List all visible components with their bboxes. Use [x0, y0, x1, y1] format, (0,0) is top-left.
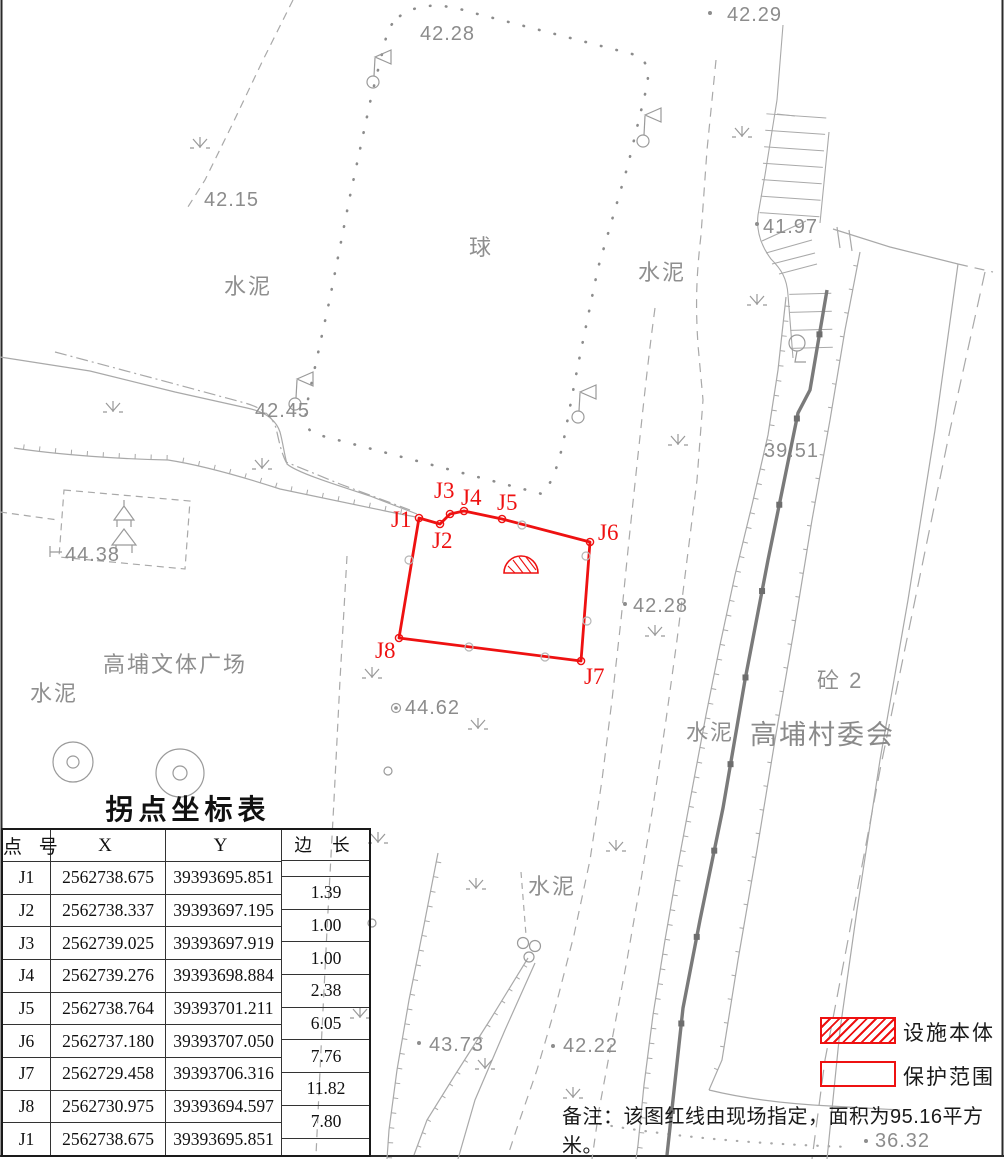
spot-height: 42.45	[255, 400, 310, 422]
table-row: J32562739.02539393697.919	[3, 927, 282, 960]
point-label-j6: J6	[598, 520, 618, 545]
point-label-j5: J5	[497, 490, 517, 515]
tick-marks	[760, 114, 827, 217]
tree-icon	[53, 742, 93, 782]
court-label: 球	[469, 235, 493, 260]
red-boundary-polygon	[399, 511, 590, 661]
steps-rungs-upper	[789, 106, 797, 222]
map-note: 备注：该图红线由现场指定，面积为95.16平方米。	[562, 1100, 1004, 1158]
cement-label: 水泥	[528, 874, 576, 899]
road-edge	[0, 357, 417, 514]
cement-label: 水泥	[686, 720, 734, 745]
table-row: J22562738.33739393697.195	[3, 894, 282, 927]
grass-icon	[668, 434, 688, 445]
table-row: J52562738.76439393701.211	[3, 992, 282, 1025]
concrete-pad-top-dash	[958, 264, 993, 272]
grass-icon	[466, 878, 486, 889]
side-length: 11.82	[282, 1073, 370, 1106]
protection-boundary: J1 J2 J3 J4 J5 J6 J7 J8	[375, 478, 618, 689]
facility-dome	[504, 556, 538, 573]
legend-facility-swatch	[820, 1017, 896, 1044]
flag-icon	[637, 108, 661, 147]
tick-marks	[417, 965, 527, 1147]
legend-facility-label: 设施本体	[903, 1017, 995, 1047]
point-label-j1: J1	[391, 507, 411, 532]
side-length: 7.80	[282, 1106, 370, 1139]
point-label-j7: J7	[584, 664, 604, 689]
col-header-y: Y	[166, 830, 282, 862]
grass-icon	[645, 625, 665, 636]
side-length-column: 边 长 1.39 1.00 1.00 2.38 6.05 7.76 11.82 …	[282, 829, 370, 1156]
survey-circle	[384, 767, 392, 775]
grass-icon	[362, 667, 382, 678]
legend-protection-label: 保护范围	[903, 1061, 995, 1091]
spot-height: 42.29	[727, 4, 782, 26]
spot-height: 42.15	[204, 189, 259, 211]
col-header-point: 点 号	[3, 830, 51, 862]
grass-icon	[747, 294, 767, 305]
col-header-x: X	[51, 830, 166, 862]
cement-label: 水泥	[30, 681, 78, 706]
dashed-lamp-feed	[521, 872, 526, 935]
table-row: J82562730.97539393694.597	[3, 1090, 282, 1123]
grass-icon	[103, 401, 123, 412]
grass-icon	[606, 840, 626, 851]
flag-icon	[572, 385, 596, 423]
spot-height: 42.22	[563, 1035, 618, 1057]
dashed-track-left	[508, 308, 655, 1155]
col-header-length: 边 长	[282, 829, 370, 861]
side-length: 1.00	[282, 942, 370, 975]
steps-right-edge	[820, 132, 829, 223]
legend-protection-swatch	[820, 1061, 896, 1087]
point-label-j2: J2	[432, 528, 452, 553]
table-row: J42562739.27639393698.884	[3, 959, 282, 992]
spot-height: 41.97	[763, 216, 818, 238]
fence-line	[14, 448, 416, 517]
grass-icon	[368, 832, 388, 843]
spot-height: 39.51	[764, 440, 819, 462]
lamp-cluster-icon	[518, 938, 541, 963]
spot-height: 42.28	[420, 23, 475, 45]
coordinate-table: 点 号 X Y J12562738.67539393695.851 J22562…	[2, 829, 282, 1156]
side-length: 6.05	[282, 1008, 370, 1041]
table-row: J62562737.18039393707.050	[3, 1025, 282, 1058]
point-label-j4: J4	[461, 485, 482, 510]
path-to-lamp	[458, 963, 535, 1159]
side-length: 1.39	[282, 877, 370, 910]
table-title: 拐点坐标表	[78, 788, 298, 828]
side-length: 7.76	[282, 1040, 370, 1073]
building-leader	[0, 512, 58, 520]
table-row: J12562738.67539393695.851	[3, 1123, 282, 1156]
grass-icon	[468, 718, 488, 729]
side-length: 1.00	[282, 910, 370, 943]
tick-marks	[387, 862, 441, 1158]
spot-height: 42.28	[633, 595, 688, 617]
table-row: J72562729.45839393706.316	[3, 1057, 282, 1090]
side-length: 2.38	[282, 975, 370, 1008]
point-label-j8: J8	[375, 638, 395, 663]
survey-map-page: 42.28 42.29 42.15 41.97 42.45 44.38 44.6…	[0, 0, 1004, 1159]
plaza-label: 高埔文体广场	[103, 652, 247, 677]
spot-height: 44.38	[65, 544, 120, 566]
ticked-path-lamp	[414, 958, 528, 1155]
dashed-road	[186, 0, 293, 210]
point-label-j3: J3	[434, 478, 454, 503]
gate-mark-2	[849, 230, 852, 251]
cement-label: 水泥	[638, 260, 686, 285]
spot-height: 43.73	[429, 1034, 484, 1056]
spot-height: 44.62	[405, 697, 460, 719]
benchmark-icon	[392, 704, 401, 713]
steps-area	[758, 25, 833, 358]
table-row: J12562738.67539393695.851	[3, 862, 282, 895]
grass-icon	[190, 137, 210, 148]
grass-icon	[563, 1087, 583, 1098]
grass-icon	[732, 126, 752, 137]
tick-marks	[24, 444, 402, 514]
grass-icon	[252, 458, 272, 469]
concrete-label: 砼 2	[817, 668, 863, 693]
village-committee-label: 高埔村委会	[750, 720, 895, 750]
spot-dots	[417, 11, 868, 1143]
cement-label: 水泥	[224, 274, 272, 299]
